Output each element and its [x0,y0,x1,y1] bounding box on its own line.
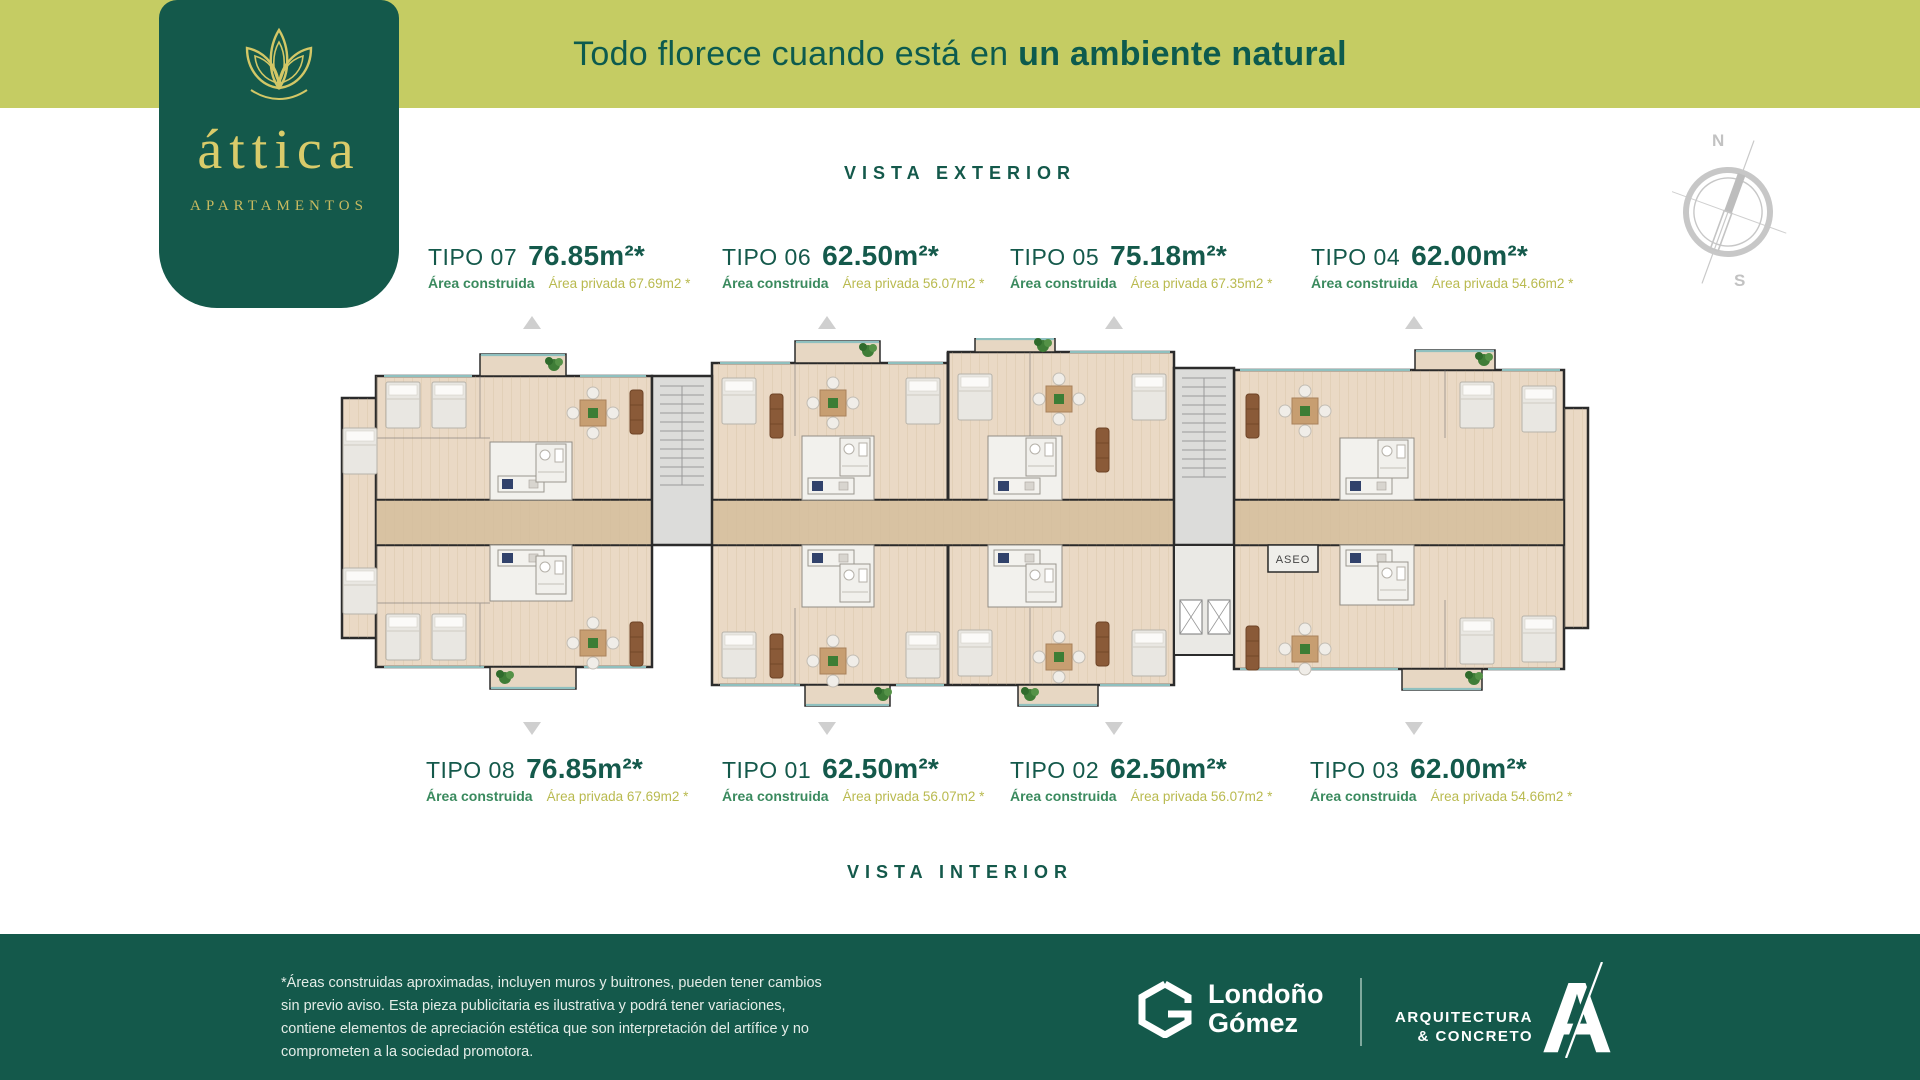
tipo-area: 62.50m²* [822,240,939,272]
aseo-room: ASEO [1268,545,1318,572]
corridor [376,500,1564,545]
stair-core-left [652,376,712,545]
area-construida-label: Área construida [428,275,535,291]
type-label-tipo02: TIPO 0262.50m²* Área construidaÁrea priv… [1010,753,1272,804]
tipo-name: TIPO 06 [722,244,811,271]
type-label-tipo06: TIPO 0662.50m²* Área construidaÁrea priv… [722,240,984,291]
tipo-name: TIPO 01 [722,757,811,784]
arquitectura-a-mark: A [1541,962,1613,1058]
vista-interior-heading: VISTA INTERIOR [0,862,1920,883]
tipo-name: TIPO 07 [428,244,517,271]
banner-headline-regular: Todo florece cuando está en [573,35,1018,73]
elevator-shafts [1174,545,1234,655]
disclaimer-text: *Áreas construidas aproximadas, incluyen… [281,972,829,1064]
attica-logo-badge: áttica APARTAMENTOS [159,0,399,308]
arquitectura-concreto-logo: ARQUITECTURA & CONCRETO A [1395,962,1613,1058]
banner-headline-bold: un ambiente natural [1018,35,1347,73]
arquitectura-line1: ARQUITECTURA [1395,1008,1533,1027]
stair-core-right [1174,368,1234,545]
area-privada-label: Área privada 56.07m2 * [1131,789,1273,804]
aseo-label: ASEO [1276,554,1311,566]
arquitectura-concreto-text: ARQUITECTURA & CONCRETO [1395,1008,1533,1046]
londono-gomez-logo: Londoño Gómez [1138,980,1323,1038]
tipo-area: 76.85m²* [526,753,643,785]
compass-south-label: S [1734,271,1745,290]
tipo-name: TIPO 04 [1311,244,1400,271]
type-label-tipo03: TIPO 0362.00m²* Área construidaÁrea priv… [1310,753,1572,804]
area-privada-label: Área privada 67.35m2 * [1131,276,1273,291]
attica-flower-icon [233,26,325,110]
tipo-area: 62.50m²* [1110,753,1227,785]
attica-floorplan-page: Todo florece cuando está en un ambiente … [0,0,1920,1080]
locator-triangle-up [818,316,836,329]
tipo-name: TIPO 02 [1010,757,1099,784]
area-privada-label: Área privada 56.07m2 * [843,789,985,804]
type-label-tipo05: TIPO 0575.18m²* Área construidaÁrea priv… [1010,240,1272,291]
type-label-tipo07: TIPO 0776.85m²* Área construidaÁrea priv… [428,240,690,291]
area-construida-label: Área construida [1311,275,1418,291]
footer-divider [1360,978,1362,1046]
locator-triangle-up [1405,316,1423,329]
tipo-name: TIPO 05 [1010,244,1099,271]
footer: *Áreas construidas aproximadas, incluyen… [0,934,1920,1080]
type-label-tipo08: TIPO 0876.85m²* Área construidaÁrea priv… [426,753,688,804]
vista-exterior-heading: VISTA EXTERIOR [0,163,1920,184]
arquitectura-line2: & CONCRETO [1395,1027,1533,1046]
compass-north-label: N [1712,131,1724,150]
tipo-area: 75.18m²* [1110,240,1227,272]
logo-subtitle: APARTAMENTOS [190,198,368,215]
tipo-name: TIPO 03 [1310,757,1399,784]
locator-triangle-down [1105,722,1123,735]
locator-triangle-up [523,316,541,329]
type-label-tipo01: TIPO 0162.50m²* Área construidaÁrea priv… [722,753,984,804]
arquitectura-concreto-icon: A [1539,962,1613,1058]
area-construida-label: Área construida [1010,788,1117,804]
banner-headline: Todo florece cuando está en un ambiente … [573,35,1347,74]
area-privada-label: Área privada 67.69m2 * [549,276,691,291]
area-construida-label: Área construida [426,788,533,804]
area-privada-label: Área privada 54.66m2 * [1432,276,1574,291]
tipo-name: TIPO 08 [426,757,515,784]
type-label-tipo04: TIPO 0462.00m²* Área construidaÁrea priv… [1311,240,1573,291]
tipo-area: 76.85m²* [528,240,645,272]
locator-triangle-up [1105,316,1123,329]
area-construida-label: Área construida [722,788,829,804]
londono-line2: Gómez [1208,1009,1323,1038]
area-construida-label: Área construida [1010,275,1117,291]
tipo-area: 62.00m²* [1411,240,1528,272]
area-privada-label: Área privada 67.69m2 * [547,789,689,804]
area-privada-label: Área privada 56.07m2 * [843,276,985,291]
area-privada-label: Área privada 54.66m2 * [1431,789,1573,804]
londono-gomez-icon [1138,980,1192,1038]
compass-icon: N S [1672,128,1792,292]
londono-line1: Londoño [1208,980,1323,1009]
locator-triangle-down [818,722,836,735]
area-construida-label: Área construida [1310,788,1417,804]
tipo-area: 62.00m²* [1410,753,1527,785]
londono-gomez-text: Londoño Gómez [1208,980,1323,1038]
locator-triangle-down [1405,722,1423,735]
locator-triangle-down [523,722,541,735]
tipo-area: 62.50m²* [822,753,939,785]
area-construida-label: Área construida [722,275,829,291]
floor-plan: ASEO [340,338,1590,713]
